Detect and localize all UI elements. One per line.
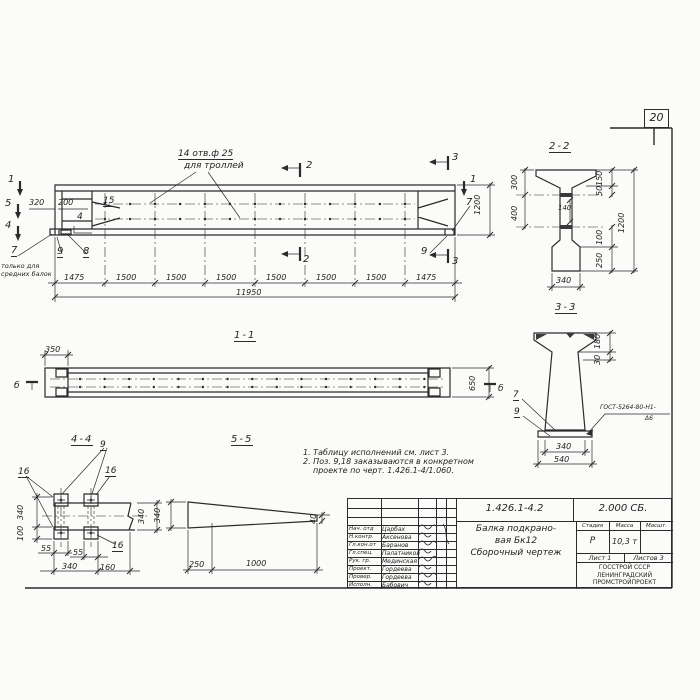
tb-row-role: Нач. отд [349,526,380,532]
chain-dim-4: 1500 [266,273,286,282]
s33-dim-340: 340 [556,442,571,451]
chain-dim-7: 1475 [416,273,436,282]
view-5-5-title: 5-5 [231,434,253,446]
tb-row-name: Мединская [382,558,417,565]
tb-row-role: Проект. [349,566,380,572]
v55-dim-250: 250 [189,560,204,569]
tb-row-name: Бабович [382,582,417,589]
sheet-number: Лист 1 [576,554,624,562]
col-scale: Масшт. [640,523,673,529]
tb-row-role: Гл.кон.от [349,542,380,548]
doc-number: 1.426.1-4.2 [456,503,573,514]
page-number: 20 [650,111,664,124]
dim-320: 320 [29,198,44,207]
s22-dim-250: 250 [595,253,604,268]
tb-row-role: Исполн. [349,582,380,588]
section-mark-1-left: 1 [8,174,14,185]
stage-value: Р [576,536,609,546]
tb-grid [576,530,673,531]
pos-7-right: 7 [466,197,472,208]
section-mark-2-bottom: 2 [303,254,309,265]
v44-dim-340-left: 340 [16,505,25,520]
tb-grid [436,499,437,589]
tb-row-name: Гордеева [382,566,417,573]
s22-dim-150: 150 [595,171,604,186]
org-line1: ГОССТРОЙ СССР [576,564,673,571]
s22-dim-100: 100 [595,230,604,245]
s22-dim-50: 50 [595,186,604,196]
note-line-2: 2. Поз. 9,18 заказываются в конкретном [303,457,474,466]
pos-9-left: 9 [57,246,63,258]
s22-dim-340: 340 [556,276,571,285]
v44-dim-55-b: 55 [73,548,83,557]
v44-dim-340-right: 340 [137,509,146,524]
v44-pos-16-bottom: 16 [112,541,123,552]
v11-dim-650: 650 [468,376,477,391]
v44-pos-16-right: 16 [105,466,116,477]
v44-dim-100: 100 [16,526,25,541]
s33-pos-7: 7 [513,390,519,401]
holes-note-line1: 14 отв.ф 25 [178,149,233,160]
section-mark-1-right: 1 [470,174,476,185]
tb-row-name: Баранов [382,542,417,549]
section-mark-3-bottom: 3 [452,256,458,267]
drawing-title-line3: Сборочный чертеж [456,548,576,558]
chain-dim-5: 1500 [316,273,336,282]
arrowheads [15,159,593,436]
s22-dim-1200: 1200 [617,213,626,233]
dim-200: 200 [58,198,73,207]
hidden-lines [58,506,94,527]
tb-row-name: Палатников [382,550,417,557]
outlines [45,170,596,539]
col-mass: Масса [609,523,640,529]
org-line3: ПРОМСТРОЙПРОЕКТ [576,579,673,586]
title-block: 1.426.1-4.2 2.000 СБ. Балка подкрано- ва… [347,498,672,588]
v44-dim-160: 160 [100,563,115,572]
section-mark-5-left: 5 [5,198,11,209]
tb-grid [418,499,419,589]
v44-pos-16-left: 16 [18,467,29,478]
s33-dim-30: 30 [593,355,602,365]
holes-note-line2: для троллей [184,161,244,171]
v55-dim-40: 40 [309,514,318,524]
org-line2: ЛЕНИНГРАДСКИЙ [576,572,673,579]
tb-grid [576,562,673,563]
v11-mark-b-right: б [498,384,504,394]
s33-dim-180: 180 [593,334,602,349]
pos-9-right: 9 [421,246,427,257]
section-mark-4-left: 4 [5,220,11,231]
drawing-title-line2: вая Бк12 [456,536,576,546]
s22-dim-400: 400 [510,206,519,221]
v55-dim-340: 340 [153,508,162,523]
note-line-1: 1. Таблицу исполнений см. лист 3. [303,448,449,457]
view-4-4-title: 4-4 [71,434,93,446]
v44-dim-55-a: 55 [41,544,51,553]
s33-pos-9: 9 [514,407,520,418]
pos-8-left: 8 [83,246,89,258]
weld-note-line1: ГОСТ-5264-80-Н1- [600,404,656,411]
dim-total-11950: 11950 [236,288,261,297]
tb-row-role: Рук. гр. [349,558,380,564]
doc-code: 2.000 СБ. [573,503,673,514]
tb-row-role: Провер. [349,574,380,580]
tb-row-role: Гл.спец. [349,550,380,556]
mass-value: 10,3 т [609,537,640,546]
sheet-count: Листов 3 [624,554,673,562]
centerlines [42,193,604,547]
chain-dim-1: 1500 [116,273,136,282]
filled-details [60,193,594,534]
tb-grid [348,508,456,509]
section-2-2-title: 2-2 [549,141,571,153]
tb-grid [348,517,456,518]
tb-row-role: Н.контр. [349,534,380,540]
view-1-1-title: 1-1 [234,330,256,342]
col-stage: Стадия [576,523,609,529]
note-line-3: проекте по черт. 1.426.1-4/1.060. [313,466,454,475]
tb-row-name: Царбах [382,526,417,533]
tb-grid [446,499,447,589]
tb-row-name: Гордеева [382,574,417,581]
section-3-3-title: 3-3 [555,302,577,314]
weld-note-line2: Δ6 [645,415,653,422]
drawing-title-line1: Балка подкрано- [456,524,576,534]
v11-mark-b-left: б [14,381,20,391]
s33-dim-540: 540 [554,455,569,464]
section-mark-4-inner: 4 [77,212,83,222]
pos-7-left: 7 [11,245,17,257]
s22-dim-300: 300 [510,175,519,190]
tb-row-name: Аксенова [382,534,417,541]
drawing-sheet: 14 отв.ф 25 для троллей 1 5 4 320 200 15… [0,0,700,700]
v44-dim-340-bottom: 340 [62,562,77,571]
chain-dim-3: 1500 [216,273,236,282]
drawing-linework [0,0,700,700]
section-mark-2-top: 2 [306,160,312,171]
section-mark-3-top: 3 [452,152,458,163]
section-cut-bars [18,156,496,384]
chain-dim-0: 1475 [64,273,84,282]
chain-dim-2: 1500 [166,273,186,282]
pos-15: 15 [103,196,114,207]
s22-dim-140: 140 [558,204,571,212]
v11-dim-350: 350 [45,345,60,354]
page-number-box: 20 [644,109,669,128]
v44-pos-9: 9 [100,440,106,451]
chain-dim-6: 1500 [366,273,386,282]
note-7-line1: только для [1,263,39,270]
dim-height-1200: 1200 [473,195,482,215]
v55-dim-1000: 1000 [246,559,266,568]
note-7-line2: средних балок [1,271,52,278]
